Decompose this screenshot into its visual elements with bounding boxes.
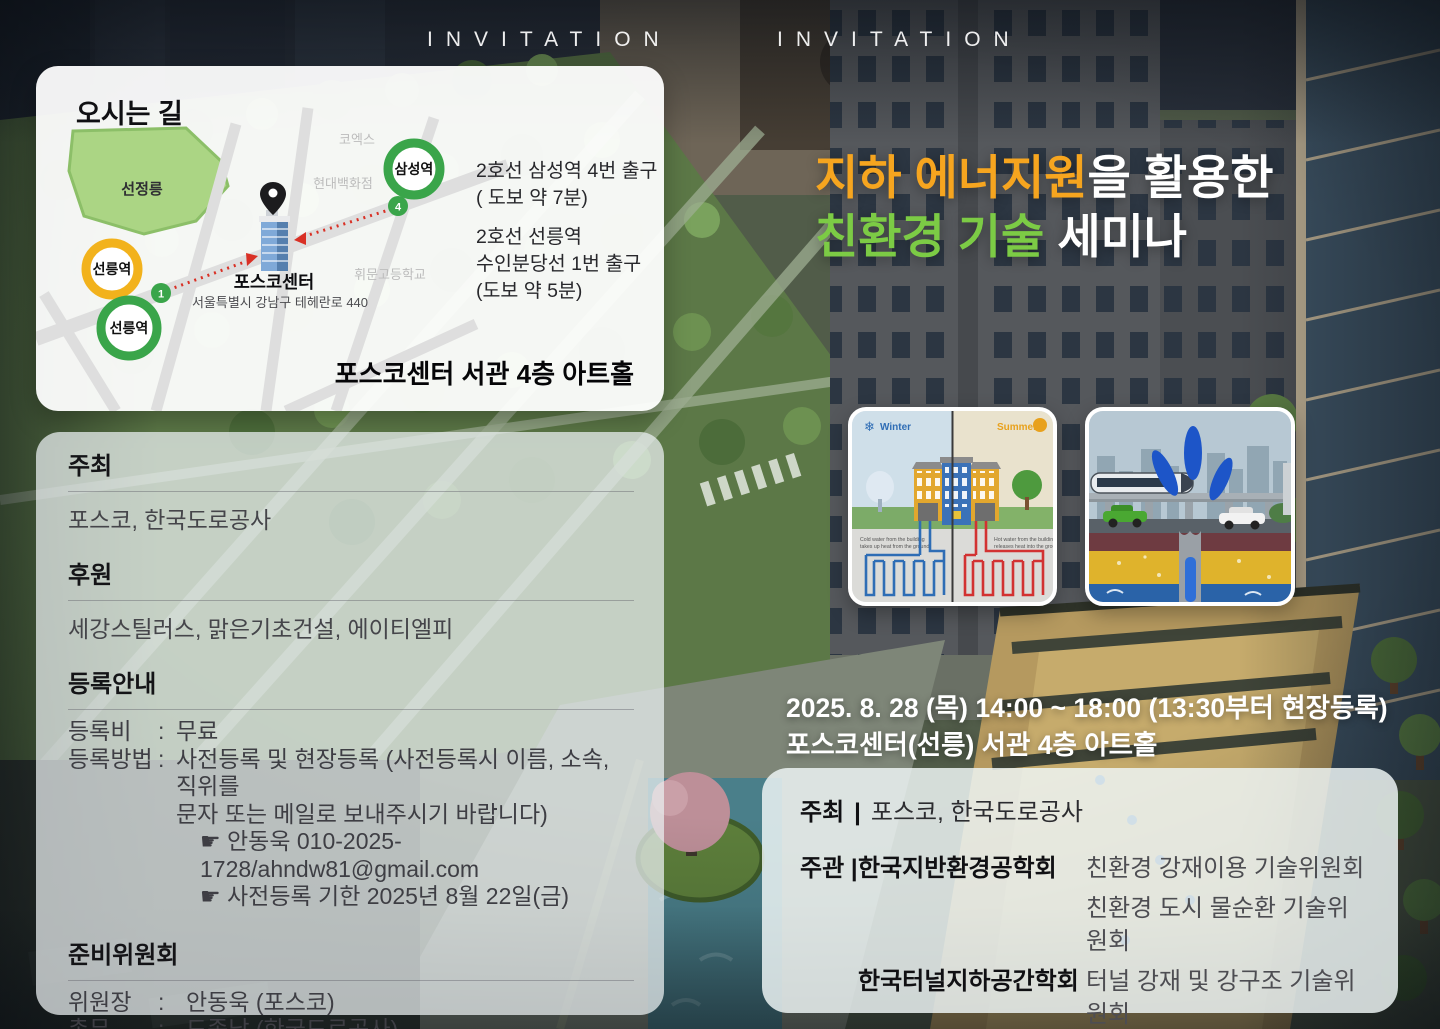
landmark-coex: 코엑스 [339,132,375,147]
direction-seolleung: 2호선 선릉역 수인분당선 1번 출구 (도보 약 5분) [476,224,641,305]
committee-secretary: 도종남 (한국도로공사) [176,1016,634,1029]
invitation-heading-right: INVITATION [777,28,1022,52]
event-datetime: 2025. 8. 28 (목) 14:00 ~ 18:00 (13:30부터 현… [786,692,1388,725]
winter-label: Winter [880,422,911,433]
organizers-card: 주최 | 포스코, 한국도로공사 주관 | 한국지반환경공학회 친환경 강재이용… [762,768,1398,1013]
direction-samseong: 2호선 삼성역 4번 출구 ( 도보 약 7분) [476,158,657,212]
venue-line: 포스코센터 서관 4층 아트홀 [335,354,634,391]
summer-tree [1012,470,1042,500]
svg-text:선릉역: 선릉역 [93,261,132,277]
groundwater-diagram-image [1085,407,1295,606]
committee-chair: 안동욱 (포스코) [176,989,634,1017]
divider [68,709,634,710]
directions-card: 코엑스 현대백화점 휘문고등학교 선정릉 삼성역 4 선릉역 선릉역 1 [36,66,664,411]
org-tunnel-society: 한국터널지하공간학회 [858,965,1086,1029]
host-value: 포스코, 한국도로공사 [68,501,634,535]
registration-method: 사전등록 및 현장등록 (사전등록시 이름, 소속, 직위를 [176,746,634,801]
svg-text:삼성역: 삼성역 [395,161,434,177]
title-line-1: 지하 에너지원을 활용한 [815,148,1274,207]
committee-heading: 준비위원회 [68,935,634,970]
divider [68,980,634,981]
committee-table: 위원장: 안동욱 (포스코) 총무: 도종남 (한국도로공사) 홍보: 김종언 … [68,989,634,1029]
winter-tree [866,471,894,503]
exit-badge-1: 1 [158,289,164,301]
sponsor-heading: 후원 [68,555,634,590]
registration-table: 등록비: 무료 등록방법: 사전등록 및 현장등록 (사전등록시 이름, 소속,… [68,718,634,911]
building-name: 포스코센터 [234,272,315,292]
host-row: 주최 | 포스코, 한국도로공사 [800,798,1368,828]
host-orgs: 포스코, 한국도로공사 [871,798,1083,828]
map-pin-icon [260,182,286,215]
geothermal-diagram-image: ❄ Winter Summer Co [848,407,1057,606]
snowflake-icon: ❄ [864,419,875,434]
organizer-label: 주관 | [800,852,858,885]
event-info-card: 주최 포스코, 한국도로공사 후원 세강스틸러스, 맑은기초건설, 에이티엘피 … [36,432,664,1015]
registration-deadline: ☛ 사전등록 기한 2025년 8월 22일(금) [176,883,634,911]
host-heading: 주최 [68,446,634,481]
landmark-dept-store: 현대백화점 [313,176,373,191]
svg-text:releases heat into the ground.: releases heat into the ground. [994,544,1053,550]
winter-caption: Cold water from the building [860,537,925,543]
well-shaft [1179,531,1201,602]
svg-text:선릉역: 선릉역 [110,320,149,336]
event-venue: 포스코센터(선릉) 서관 4층 아트홀 [786,729,1388,762]
summer-caption: Hot water from the building [994,537,1053,543]
sponsor-value: 세강스틸러스, 맑은기초건설, 에이티엘피 [68,610,634,644]
registration-contact: ☛ 안동욱 010-2025-1728/ahndw81@gmail.com [176,828,634,883]
station-seolleung-yellow: 선릉역 [86,243,138,295]
invitation-heading-left: INVITATION [427,28,672,52]
building-graphic [912,457,1001,525]
title-line-2: 친환경 기술 세미나 [815,207,1274,266]
park-label: 선정릉 [121,180,163,198]
divider [68,600,634,601]
building-address: 서울특별시 강남구 테헤란로 440 [192,295,368,310]
event-datetime-block: 2025. 8. 28 (목) 14:00 ~ 18:00 (13:30부터 현… [786,692,1388,762]
committee-tunnel-steel: 터널 강재 및 강구조 기술위원회 [1086,965,1368,1029]
exit-badge-4: 4 [395,202,402,214]
building-icon [259,210,290,271]
landmark-school: 휘문고등학교 [354,267,426,282]
directions-title: 오시는 길 [76,92,183,131]
seminar-title: 지하 에너지원을 활용한 친환경 기술 세미나 [815,148,1274,266]
committee-water-cycle: 친환경 도시 물순환 기술위원회 [1086,892,1368,958]
registration-heading: 등록안내 [68,664,634,699]
organizer-grid: 주관 | 한국지반환경공학회 친환경 강재이용 기술위원회 친환경 도시 물순환… [800,852,1368,1029]
org-geoenv-society: 한국지반환경공학회 [858,852,1086,885]
summer-label: Summer [997,422,1037,433]
registration-fee: 무료 [176,718,634,746]
divider [68,491,634,492]
seminar-invitation-poster: INVITATION INVITATION 코엑스 현대백화점 휘문고등학교 [0,0,1440,1029]
committee-steel-reuse: 친환경 강재이용 기술위원회 [1086,852,1368,885]
